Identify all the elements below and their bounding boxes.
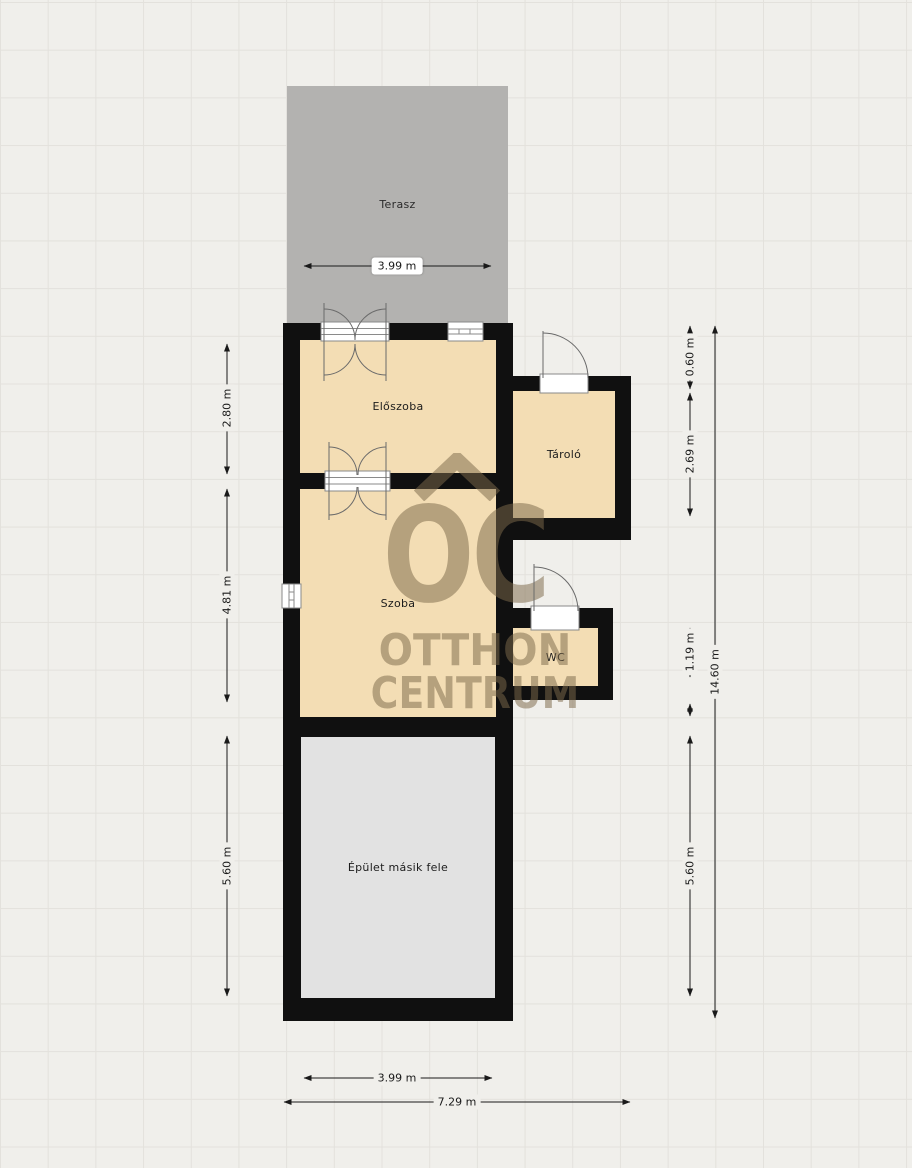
room-epulet-masik-fele: Épület másik fele <box>301 737 495 998</box>
room-wc: WC <box>513 628 598 686</box>
room-terasz: Terasz <box>287 86 508 323</box>
dim-label-left-lower: 5.60 m <box>220 843 235 890</box>
dim-label-bottom-total: 7.29 m <box>434 1095 481 1110</box>
room-label-tarolo: Tároló <box>547 448 581 461</box>
room-label-eloszoba: Előszoba <box>372 400 423 413</box>
building-wc-wing: WC <box>496 608 613 700</box>
dim-label-bottom-inner: 3.99 m <box>374 1071 421 1086</box>
dim-label-right-total: 14.60 m <box>708 645 723 699</box>
room-tarolo: Tároló <box>513 391 615 518</box>
dim-label-right-tarolo: 2.69 m <box>683 431 698 478</box>
room-label-epulet-masik-fele: Épület másik fele <box>348 861 448 874</box>
floor-plan-canvas: Terasz Előszoba Szoba Épület másik fele … <box>0 0 912 1168</box>
dim-label-right-lower: 5.60 m <box>683 843 698 890</box>
dim-label-right-wc: 1.19 m <box>683 629 698 676</box>
dim-label-terrace-width: 3.99 m <box>372 258 423 275</box>
building-tarolo-wing: Tároló <box>496 376 631 540</box>
room-eloszoba: Előszoba <box>300 340 496 473</box>
dim-label-left-szoba: 4.81 m <box>220 572 235 619</box>
room-label-wc: WC <box>546 651 565 664</box>
building-main-wing: Előszoba Szoba Épület másik fele <box>283 323 513 1021</box>
room-label-szoba: Szoba <box>381 597 416 610</box>
room-szoba: Szoba <box>300 489 496 717</box>
dim-label-left-eloszoba: 2.80 m <box>220 385 235 432</box>
room-label-terasz: Terasz <box>379 198 415 211</box>
dim-label-right-offset: 0.60 m <box>683 334 698 381</box>
